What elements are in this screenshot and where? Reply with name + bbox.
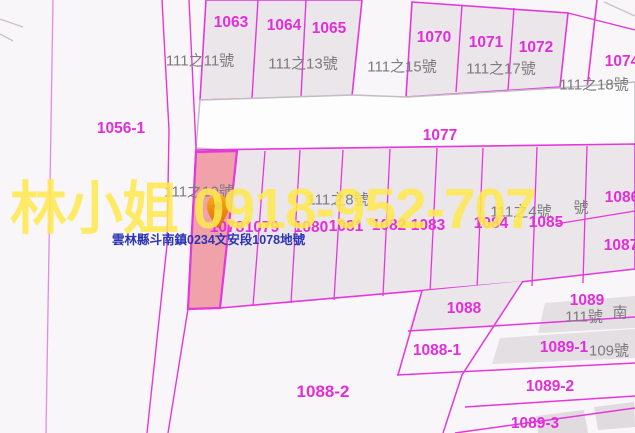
parcel-number-1089-3: 1089-3 xyxy=(511,415,559,433)
parcel-number-1071: 1071 xyxy=(469,34,503,52)
parcel-number-1088-1: 1088-1 xyxy=(413,342,461,360)
parcel-number-1089: 1089 xyxy=(570,292,604,310)
address-111-18: 111之18號 xyxy=(559,74,629,95)
parcel-number-1065: 1065 xyxy=(312,20,346,38)
parcel-number-1088-2: 1088-2 xyxy=(297,382,350,402)
parcel-number-1088: 1088 xyxy=(447,300,481,318)
address-111-11: 111之11號 xyxy=(166,50,234,71)
parcel-number-1086: 1086 xyxy=(605,189,635,207)
map-canvas[interactable]: 1063 1064 1065 1070 1071 1072 1074 1056-… xyxy=(0,0,635,433)
address-109: 109號 xyxy=(589,340,629,361)
address-111-15: 111之15號 xyxy=(367,56,437,77)
parcel-number-1056-1: 1056-1 xyxy=(97,120,145,138)
address-111-17: 111之17號 xyxy=(466,58,536,79)
parcel-number-1074: 1074 xyxy=(605,53,635,71)
address-111-13: 111之13號 xyxy=(268,53,338,74)
parcel-number-1070: 1070 xyxy=(417,29,451,47)
parcel-number-1087: 1087 xyxy=(604,237,635,255)
parcel-number-1089-1: 1089-1 xyxy=(540,339,588,357)
parcel-number-1077: 1077 xyxy=(423,127,457,145)
parcel-number-1089-2: 1089-2 xyxy=(526,378,574,396)
address-fragment-nan: 南 xyxy=(612,302,627,323)
parcel-number-1072: 1072 xyxy=(519,39,553,57)
parcel-number-1063: 1063 xyxy=(214,14,248,32)
parcel-number-1064: 1064 xyxy=(267,17,301,35)
address-fragment-hao: 號 xyxy=(573,197,588,218)
contact-watermark: 林小姐 0918-952-707 xyxy=(10,163,536,245)
